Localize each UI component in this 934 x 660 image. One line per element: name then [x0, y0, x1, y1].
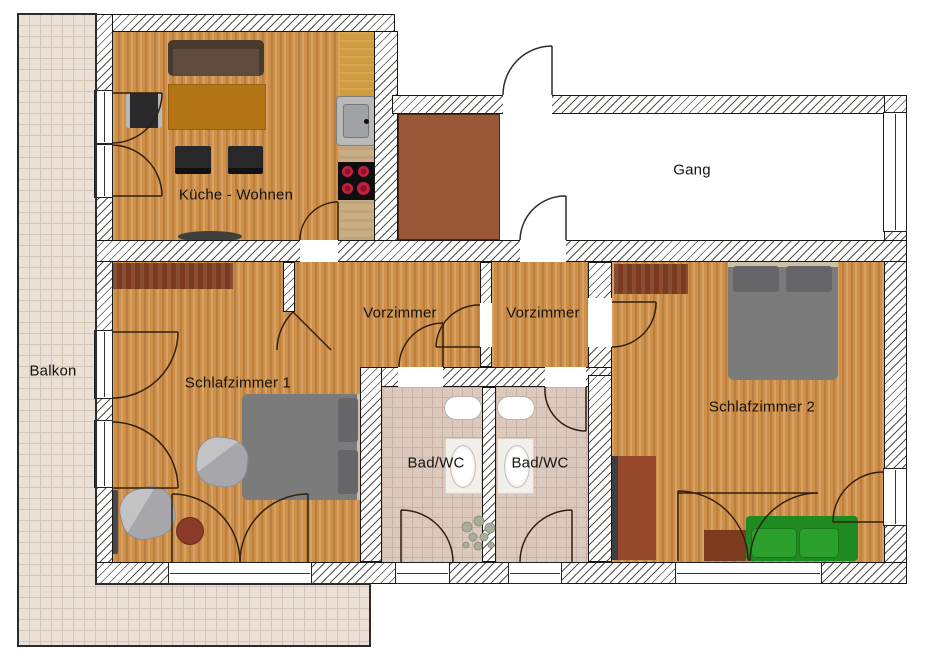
kitchen-counter-amber: [340, 32, 374, 98]
seat-cushion: [799, 528, 839, 558]
window: [883, 112, 907, 232]
balcony-door-frame: [94, 144, 113, 198]
chair: [175, 146, 211, 174]
coffee-table: [168, 84, 266, 130]
stove: [338, 162, 374, 200]
label-kueche-wohnen: Küche - Wohnen: [179, 187, 293, 204]
balcony-door-frame: [94, 420, 113, 488]
window: [168, 562, 312, 584]
wardrobe: [614, 264, 688, 294]
pillow: [786, 266, 832, 292]
double-bed: [728, 262, 838, 380]
chair: [228, 146, 263, 174]
pillow: [733, 266, 779, 292]
label-schlafzimmer-1: Schlafzimmer 1: [185, 375, 291, 392]
door-opening: [588, 298, 612, 347]
armchair: [126, 93, 162, 128]
toilet: [497, 396, 535, 420]
wall: [283, 262, 295, 312]
window: [395, 562, 450, 584]
label-vorzimmer-2: Vorzimmer: [506, 305, 579, 322]
pillow: [338, 450, 358, 494]
label-balkon: Balkon: [29, 363, 76, 380]
wardrobe: [113, 263, 233, 289]
window: [675, 562, 822, 584]
label-vorzimmer-1: Vorzimmer: [363, 305, 436, 322]
sofa: [168, 40, 264, 76]
wall: [392, 95, 907, 114]
side-table: [704, 530, 746, 561]
storage-area: [398, 114, 500, 240]
door-opening: [545, 367, 586, 387]
toilet: [444, 396, 482, 420]
cabinet: [612, 456, 656, 560]
burner: [342, 183, 353, 194]
window: [94, 90, 113, 144]
burner: [357, 182, 370, 195]
label-gang: Gang: [673, 162, 711, 179]
door-opening: [398, 367, 443, 387]
wall: [482, 387, 496, 562]
wall: [360, 367, 382, 562]
burner: [358, 166, 369, 177]
wall: [588, 375, 612, 562]
door-opening: [480, 303, 492, 347]
wall: [374, 31, 398, 242]
wall: [95, 240, 907, 262]
door-opening: [300, 240, 338, 262]
seat-cushion: [751, 528, 797, 558]
side-table-round: [176, 517, 204, 545]
door-arc: [503, 46, 552, 95]
window: [508, 562, 562, 584]
kitchen-sink: [336, 96, 376, 146]
sofa-green: [746, 516, 858, 561]
faucet-icon: [364, 119, 369, 124]
door-opening: [520, 240, 566, 262]
wall: [95, 14, 395, 32]
window: [94, 330, 113, 399]
entry-door-opening: [503, 95, 552, 114]
pillow: [338, 398, 358, 442]
burner: [342, 166, 353, 177]
balcony-door-frame: [883, 468, 907, 526]
floor-plan: Küche - Wohnen Gang Vorzimmer Vorzimmer …: [0, 0, 934, 660]
label-bad-wc-2: Bad/WC: [511, 455, 568, 472]
double-bed: [242, 394, 362, 500]
label-bad-wc-1: Bad/WC: [407, 455, 464, 472]
label-schlafzimmer-2: Schlafzimmer 2: [709, 399, 815, 416]
